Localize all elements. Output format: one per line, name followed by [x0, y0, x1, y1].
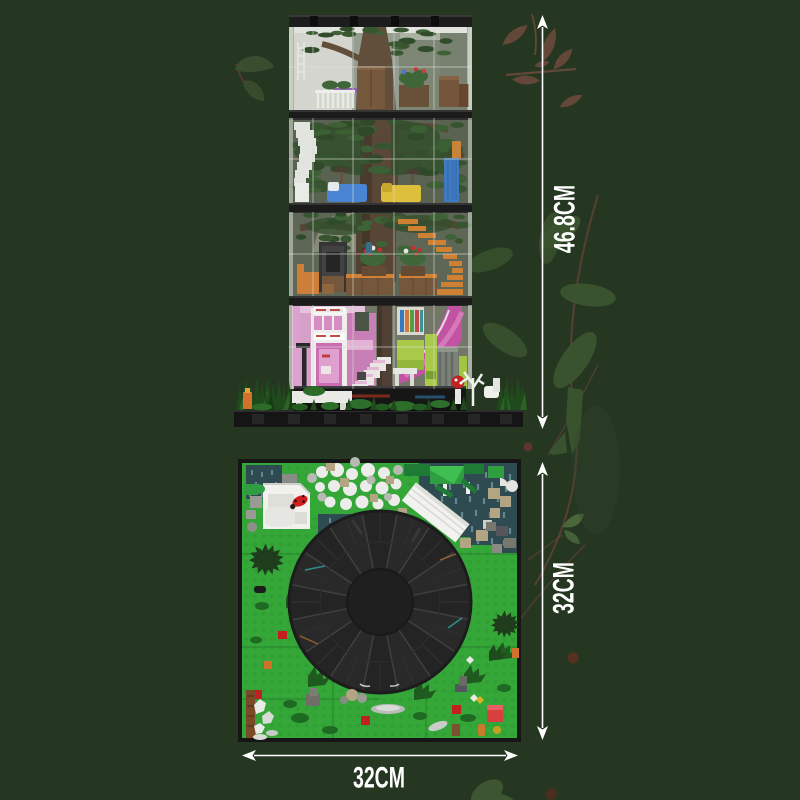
svg-text:32CM: 32CM — [547, 562, 580, 614]
svg-text:46.8CM: 46.8CM — [548, 185, 581, 253]
svg-text:32CM: 32CM — [353, 761, 405, 794]
